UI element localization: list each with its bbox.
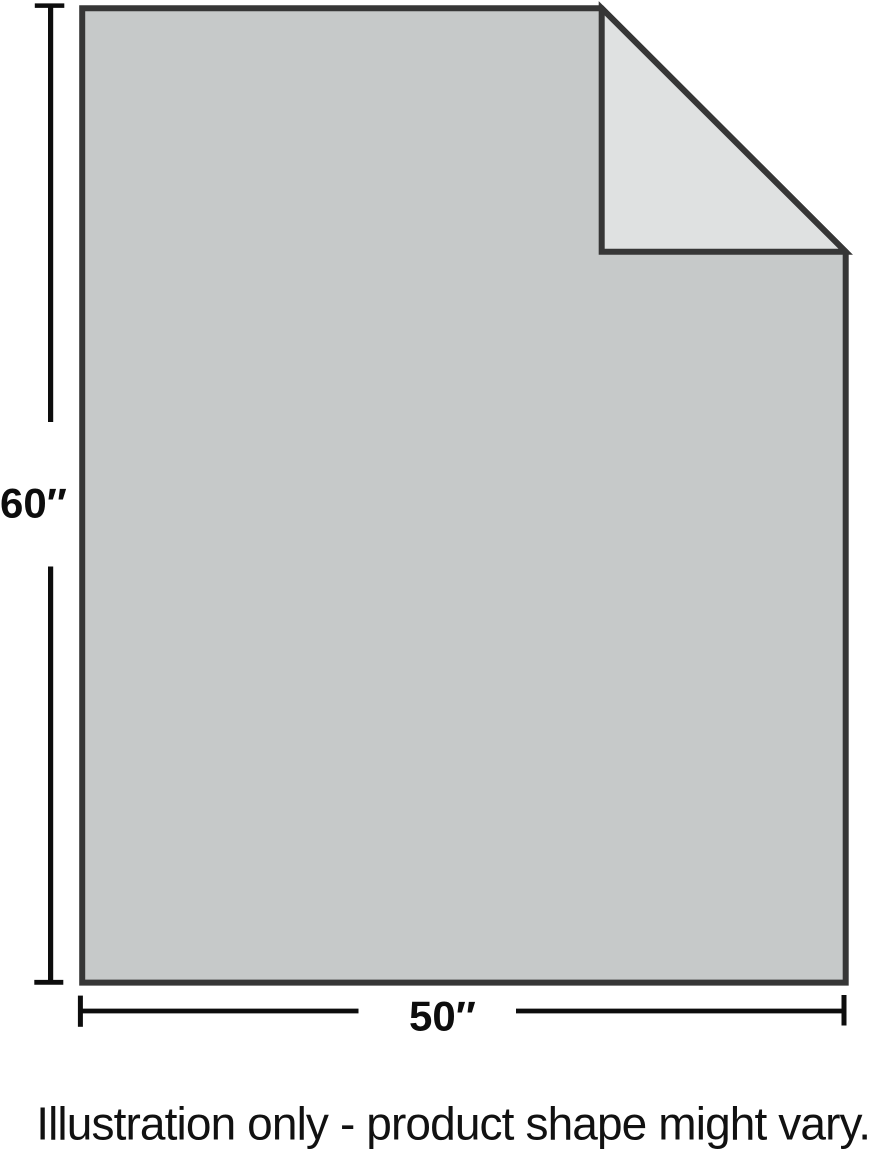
svg-text:60″: 60″ — [0, 480, 67, 527]
svg-text:Illustration only - product sh: Illustration only - product shape might … — [36, 1097, 870, 1149]
svg-text:50″: 50″ — [409, 993, 476, 1040]
